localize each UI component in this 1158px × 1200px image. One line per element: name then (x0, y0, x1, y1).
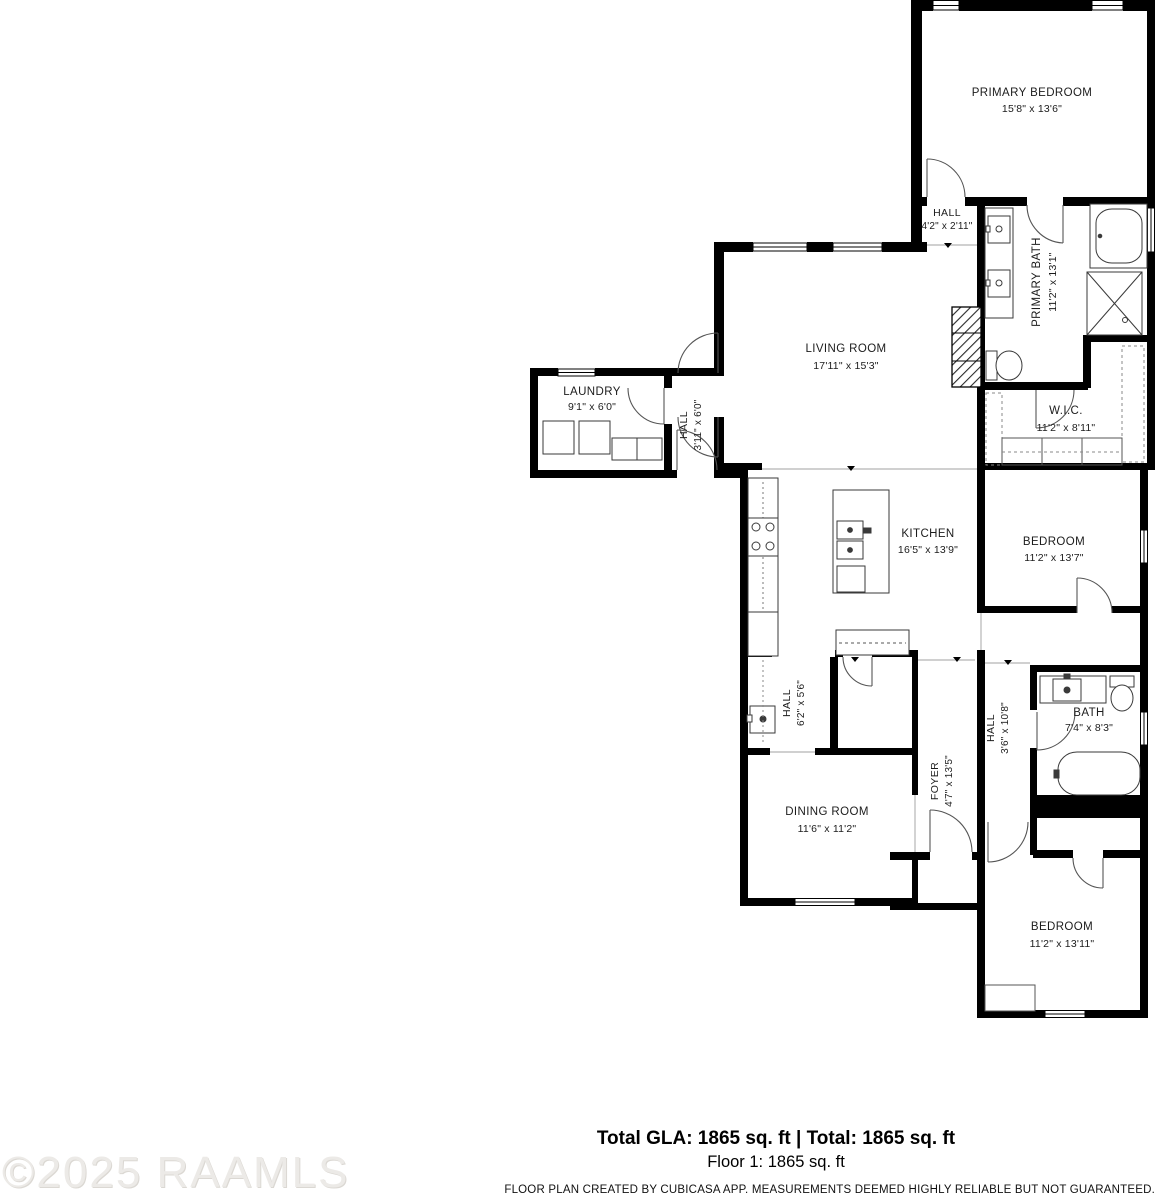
primary-bedroom-dims: 15'8" x 13'6" (1002, 103, 1062, 115)
hall-lower-dims: 3'6" x 10'8" (1000, 702, 1011, 754)
hall-lower-label: HALL (985, 714, 997, 742)
foyer-label: FOYER (929, 762, 941, 800)
window (753, 243, 807, 251)
thresholds (762, 245, 1030, 852)
stove (748, 518, 778, 556)
window (933, 1, 959, 11)
window (1092, 1, 1123, 11)
bedroom-mid-label: BEDROOM (1023, 536, 1085, 548)
window (558, 369, 595, 376)
wic-dims: 11'2" x 8'11" (1037, 422, 1096, 434)
total-gla-text: Total GLA: 1865 sq. ft | Total: 1865 sq.… (400, 1128, 1152, 1151)
primary-bath-label: PRIMARY BATH (1031, 237, 1043, 327)
living-room-dims: 17'11" x 15'3" (813, 360, 879, 372)
primary-bedroom-label: PRIMARY BEDROOM (972, 87, 1093, 99)
hall-kitchen-label: HALL (781, 689, 793, 717)
bath-dims: 7'4" x 8'3" (1065, 722, 1113, 734)
window (1141, 712, 1148, 745)
laundry-dims: 9'1" x 6'0" (568, 401, 616, 413)
shower (1087, 272, 1142, 335)
primary-bath-dims: 11'2" x 13'1" (1047, 252, 1059, 311)
door (988, 822, 1028, 862)
window (1045, 1011, 1085, 1018)
watermark: ©2025 RAAMLS (2, 1148, 349, 1198)
dining-room-label: DINING ROOM (785, 806, 869, 818)
bathtub (1054, 752, 1140, 795)
hall-upper-label: HALL (933, 207, 961, 219)
hall-laundry-label: HALL (678, 411, 690, 439)
window (795, 899, 855, 906)
base-cabinet (748, 612, 778, 656)
door (930, 810, 972, 852)
toilet (986, 351, 1022, 380)
door (1077, 578, 1112, 613)
floor-plan-drawing: PRIMARY BEDROOM 15'8" x 13'6" HALL 4'2" … (0, 0, 1158, 1200)
bedroom-bottom-dims: 11'2" x 13'11" (1030, 938, 1095, 950)
bedroom-mid-dims: 11'2" x 13'7" (1024, 552, 1083, 564)
sideboard (836, 630, 909, 655)
kitchen-island (833, 490, 889, 593)
hall-upper-dims: 4'2" x 2'11" (922, 221, 973, 232)
dryer (579, 421, 610, 454)
hall-laundry-dims: 3'11" x 6'0" (693, 399, 704, 450)
dining-room-dims: 11'6" x 11'2" (798, 823, 857, 835)
vanity-double-sink (985, 208, 1013, 318)
door (628, 388, 664, 424)
wic-label: W.I.C. (1049, 405, 1083, 417)
disclaimer-text: FLOOR PLAN CREATED BY CUBICASA APP. MEAS… (455, 1184, 1155, 1196)
kitchen-dims: 16'5" x 13'9" (898, 544, 958, 556)
bath-vanity (1040, 674, 1106, 703)
window (833, 243, 882, 251)
hall-kitchen-dims: 6'2" x 5'6" (796, 680, 807, 726)
floor-plan-canvas: PRIMARY BEDROOM 15'8" x 13'6" HALL 4'2" … (0, 0, 1158, 1200)
door (1073, 858, 1103, 888)
door (927, 159, 965, 197)
closet-box (985, 985, 1035, 1011)
laundry-counter (612, 438, 662, 460)
fireplace (952, 307, 981, 387)
toilet (1110, 676, 1134, 711)
footer-totals-block: Total GLA: 1865 sq. ft | Total: 1865 sq.… (400, 1128, 1152, 1173)
window (1141, 530, 1148, 563)
living-room-label: LIVING ROOM (805, 343, 886, 355)
bath-label: BATH (1073, 707, 1104, 719)
kitchen-label: KITCHEN (901, 528, 954, 540)
foyer-dims: 4'7" x 13'5" (944, 755, 955, 807)
laundry-label: LAUNDRY (563, 386, 621, 398)
washer (543, 421, 574, 454)
utility-sink (747, 660, 775, 745)
bathtub (1090, 204, 1147, 268)
window (1148, 208, 1155, 252)
bedroom-bottom-label: BEDROOM (1031, 921, 1093, 933)
door (678, 333, 718, 373)
door (843, 657, 872, 686)
floor-total-text: Floor 1: 1865 sq. ft (400, 1151, 1152, 1173)
